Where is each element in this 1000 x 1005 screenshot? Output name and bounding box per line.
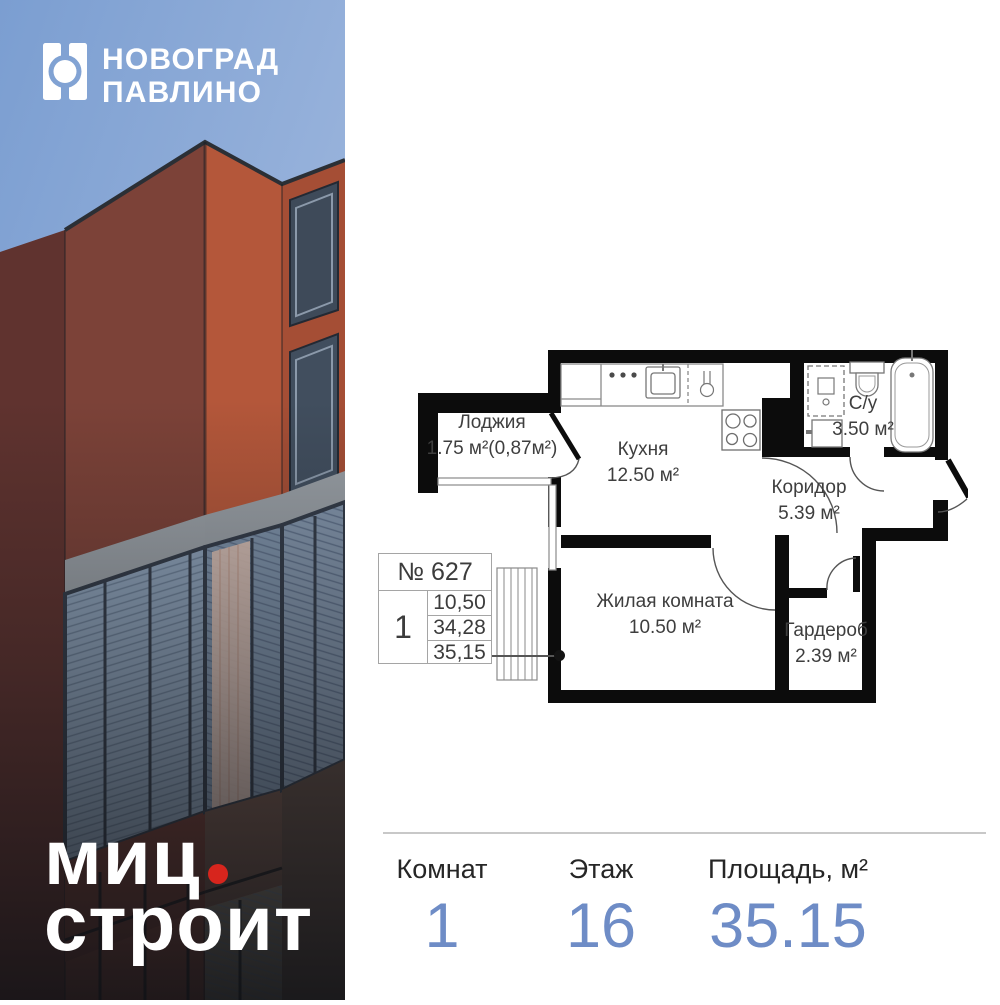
room-area: 1.75 м²(0,87м²) (427, 436, 558, 462)
room-label-wardrobe: Гардероб 2.39 м² (784, 618, 868, 670)
stats-divider (383, 832, 986, 834)
room-label-living-room: Жилая комната 10.50 м² (596, 589, 733, 641)
balcony-ladder (497, 568, 537, 680)
room-name: Жилая комната (596, 589, 733, 615)
stat-value: 1 (372, 892, 512, 961)
room-label-bathroom: С/у 3.50 м² (832, 391, 894, 443)
entrance-door-leaf (948, 460, 968, 497)
stat-value: 16 (531, 892, 671, 961)
leader-dot (554, 650, 565, 661)
room-label-corridor: Коридор 5.39 м² (771, 475, 846, 527)
project-logo-icon (43, 43, 87, 100)
project-logo: НОВОГРАД ПАВЛИНО (43, 43, 279, 109)
room-name: Лоджия (427, 410, 558, 436)
total-area-value: 35,15 (428, 641, 491, 665)
stat-floor: Этаж 16 (531, 854, 671, 961)
room-area: 3.50 м² (832, 417, 894, 443)
stat-label: Этаж (531, 854, 671, 884)
net-area-value: 34,28 (428, 616, 491, 641)
leader-line (492, 655, 556, 657)
room-area: 12.50 м² (607, 463, 679, 489)
stat-label: Комнат (372, 854, 512, 884)
room-name: Кухня (607, 437, 679, 463)
stat-rooms: Комнат 1 (372, 854, 512, 961)
building-photo: НОВОГРАД ПАВЛИНО миц строит (0, 0, 345, 1000)
room-name: С/у (832, 391, 894, 417)
unit-rooms-count: 1 (379, 591, 428, 663)
room-area: 5.39 м² (771, 501, 846, 527)
room-name: Гардероб (784, 618, 868, 644)
stove-icon (722, 410, 760, 450)
room-label-kitchen: Кухня 12.50 м² (607, 437, 679, 489)
room-label-loggia: Лоджия 1.75 м²(0,87м²) (427, 410, 558, 462)
stat-label: Площадь, м² (688, 854, 888, 884)
unit-number: № 627 (379, 554, 491, 591)
hob-dots-icon (609, 372, 636, 377)
bathtub-icon (891, 350, 933, 452)
unit-spec-table: № 627 1 10,50 34,28 35,15 (378, 553, 492, 664)
room-area: 10.50 м² (596, 615, 733, 641)
developer-wordmark-line2: строит (44, 884, 313, 962)
stat-area: Площадь, м² 35.15 (688, 854, 888, 961)
room-name: Коридор (771, 475, 846, 501)
project-name-line2: ПАВЛИНО (102, 76, 279, 109)
stat-value: 35.15 (688, 892, 888, 961)
window (290, 182, 338, 326)
kitchen-counter (561, 364, 723, 406)
project-name-line1: НОВОГРАД (102, 43, 279, 76)
room-area: 2.39 м² (784, 644, 868, 670)
living-area-value: 10,50 (428, 591, 491, 616)
